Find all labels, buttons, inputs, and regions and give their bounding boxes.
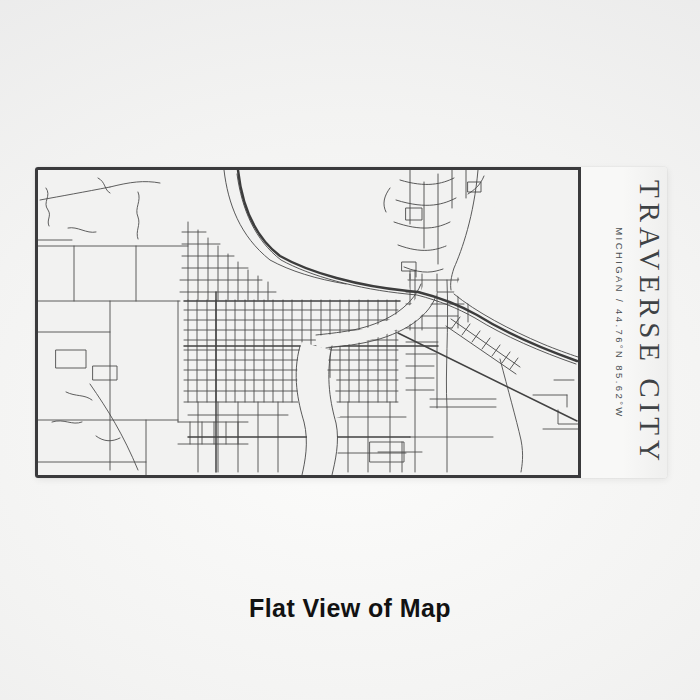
view-caption: Flat View of Map	[0, 594, 700, 623]
background-stage: TRAVERSE CITY MICHIGAN / 44.76°N 85.62°W…	[0, 0, 700, 700]
traverse-city-map-graphic	[38, 170, 578, 475]
map-title: TRAVERSE CITY	[633, 167, 667, 478]
engraving-text-block: TRAVERSE CITY MICHIGAN / 44.76°N 85.62°W	[581, 167, 667, 478]
map-water	[218, 170, 578, 475]
product-wrap-panel: TRAVERSE CITY MICHIGAN / 44.76°N 85.62°W	[35, 167, 667, 478]
map-frame	[35, 167, 581, 478]
engraving-panel: TRAVERSE CITY MICHIGAN / 44.76°N 85.62°W	[581, 167, 667, 478]
map-subtitle: MICHIGAN / 44.76°N 85.62°W	[614, 167, 625, 478]
